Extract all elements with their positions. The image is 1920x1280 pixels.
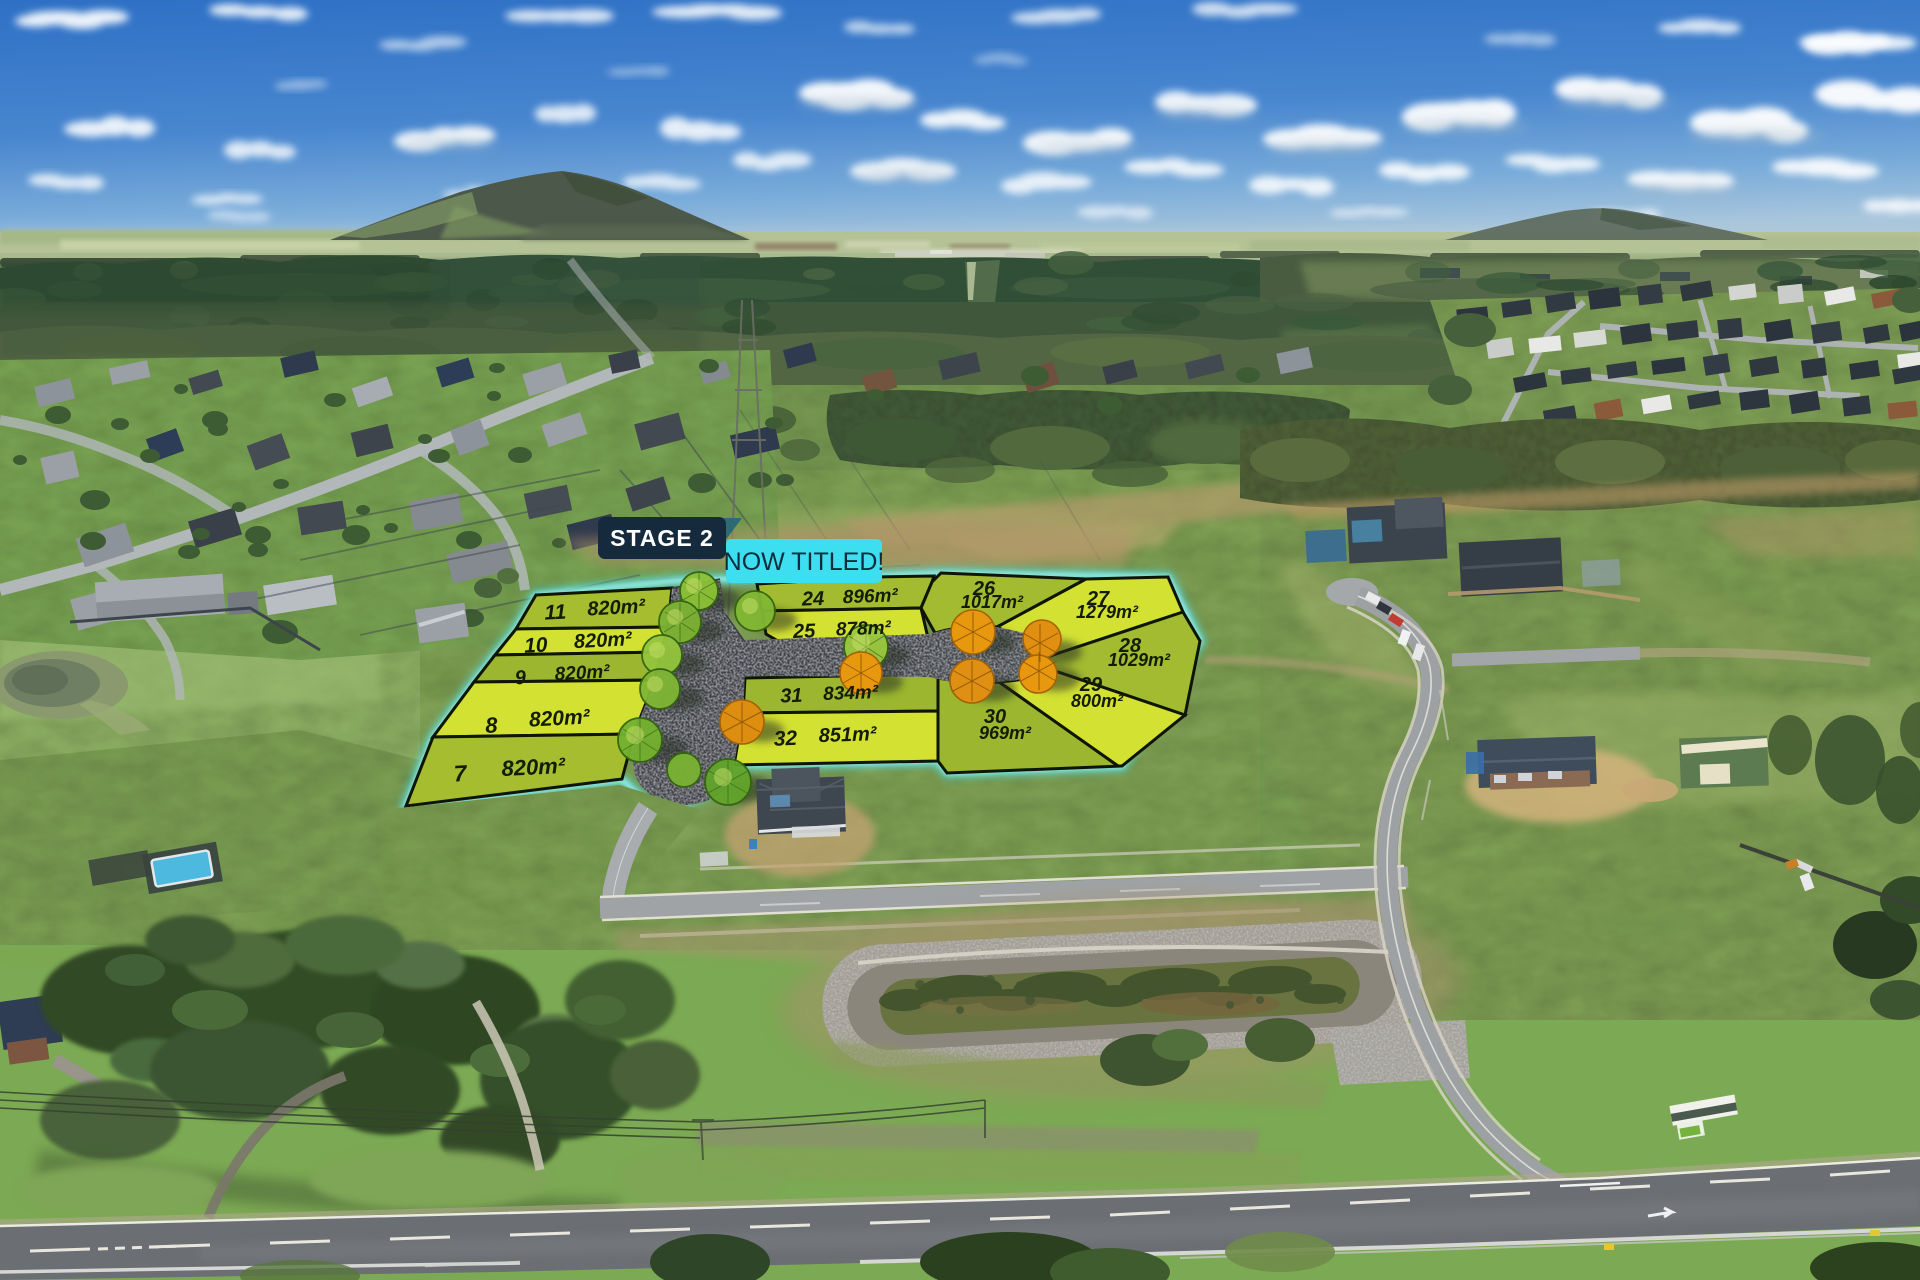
svg-text:800m²: 800m²	[1071, 691, 1124, 711]
svg-text:32: 32	[773, 727, 797, 751]
svg-text:896m²: 896m²	[842, 585, 898, 608]
svg-text:1279m²: 1279m²	[1076, 602, 1139, 622]
svg-text:969m²: 969m²	[979, 723, 1032, 743]
svg-text:STAGE 2: STAGE 2	[610, 525, 714, 551]
svg-text:8: 8	[485, 712, 499, 738]
svg-text:851m²: 851m²	[818, 723, 878, 747]
svg-text:9: 9	[514, 667, 527, 690]
svg-text:NOW TITLED!: NOW TITLED!	[724, 548, 885, 576]
svg-text:820m²: 820m²	[587, 595, 647, 620]
svg-text:820m²: 820m²	[554, 661, 611, 685]
svg-text:31: 31	[780, 685, 803, 708]
svg-text:24: 24	[800, 588, 824, 611]
svg-text:834m²: 834m²	[823, 682, 879, 705]
svg-text:1029m²: 1029m²	[1108, 650, 1171, 670]
svg-text:878m²: 878m²	[836, 618, 892, 641]
svg-text:11: 11	[544, 601, 567, 625]
svg-text:820m²: 820m²	[573, 628, 633, 653]
svg-text:820m²: 820m²	[528, 705, 591, 731]
svg-text:1017m²: 1017m²	[961, 592, 1024, 612]
svg-text:25: 25	[792, 620, 817, 643]
svg-text:10: 10	[524, 634, 549, 658]
svg-text:820m²: 820m²	[501, 753, 566, 781]
